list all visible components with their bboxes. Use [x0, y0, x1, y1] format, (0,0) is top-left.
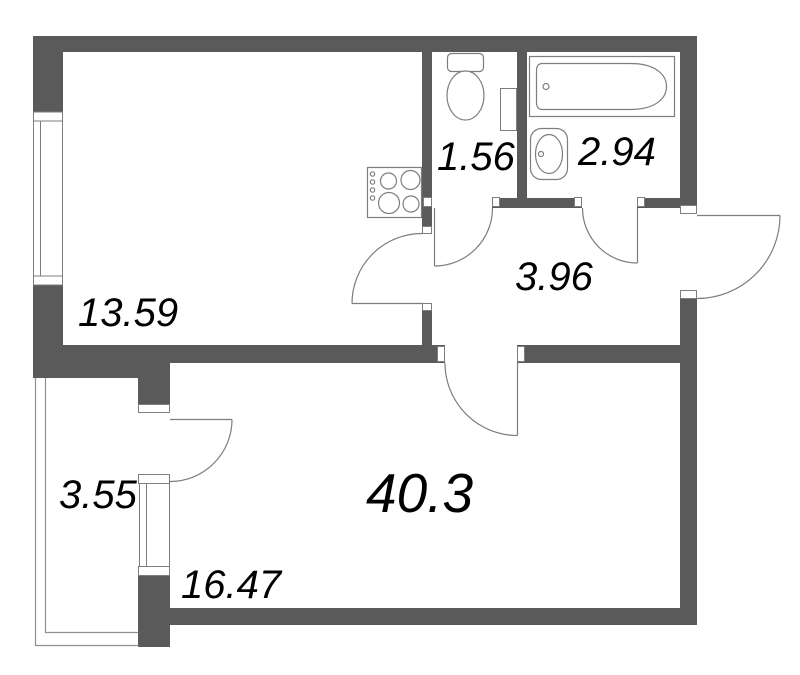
- floor-plan: 13.59 1.56 2.94 3.96 3.55 40.3 16.47: [0, 0, 800, 675]
- room-label-bathroom: 2.94: [578, 132, 656, 172]
- kitchen-door: [352, 234, 422, 304]
- kitchen-window: [34, 112, 63, 285]
- wc-door: [435, 208, 493, 266]
- sink-icon: [531, 129, 568, 180]
- bathtub-icon: [530, 57, 675, 117]
- room-label-living-room: 16.47: [181, 565, 281, 605]
- room-label-hallway: 3.96: [515, 257, 593, 297]
- duct-icon: [501, 89, 517, 131]
- door-jambs: [139, 198, 697, 413]
- toilet-icon: [447, 54, 484, 121]
- room-label-kitchen-living: 13.59: [78, 293, 178, 333]
- room-label-wc: 1.56: [437, 137, 515, 177]
- balcony-door: [170, 420, 232, 482]
- room-label-balcony: 3.55: [59, 475, 137, 515]
- stove-icon: [368, 168, 422, 218]
- room-door: [445, 363, 518, 436]
- entrance-door: [697, 216, 780, 299]
- balcony-window: [139, 475, 170, 576]
- plan-linework: [0, 0, 800, 675]
- total-area-label: 40.3: [366, 466, 473, 521]
